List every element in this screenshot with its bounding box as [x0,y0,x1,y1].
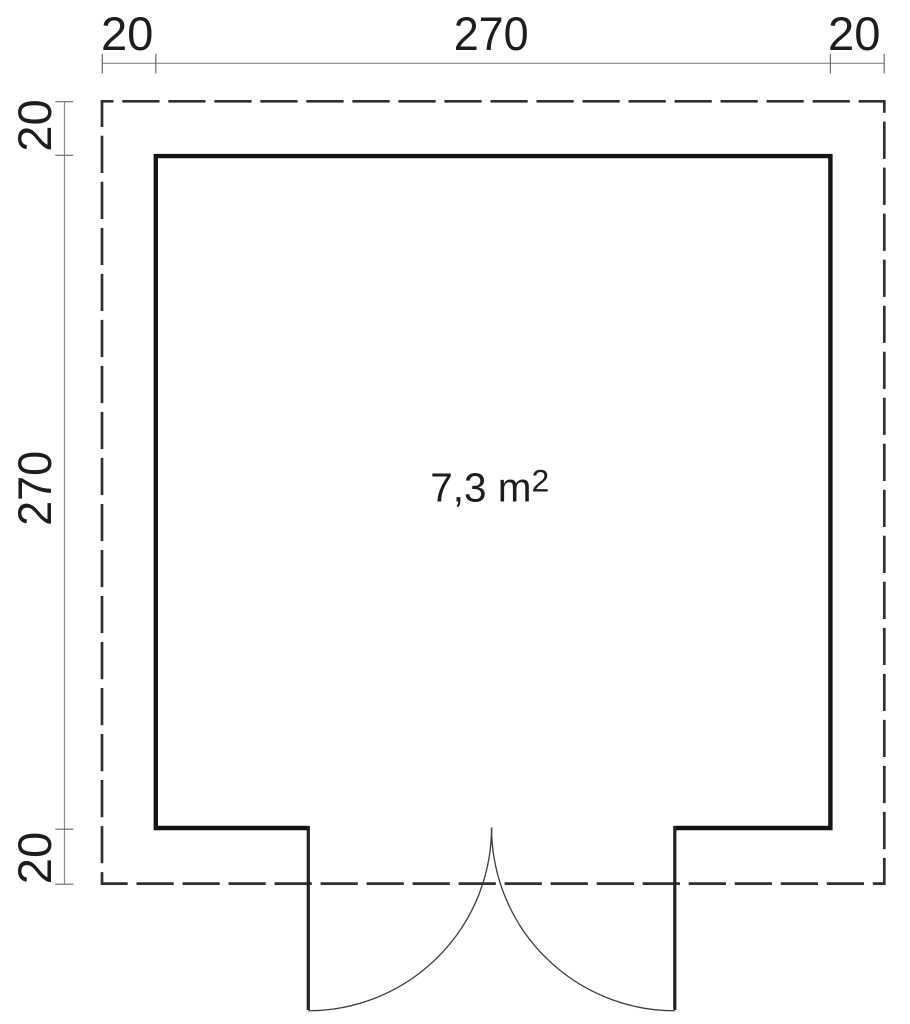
svg-text:20: 20 [101,8,154,61]
svg-text:270: 270 [9,451,62,526]
svg-text:7,3 m2: 7,3 m2 [430,462,549,510]
svg-text:20: 20 [9,99,62,152]
svg-text:20: 20 [9,832,62,885]
svg-text:270: 270 [454,8,529,61]
svg-text:20: 20 [828,8,881,61]
